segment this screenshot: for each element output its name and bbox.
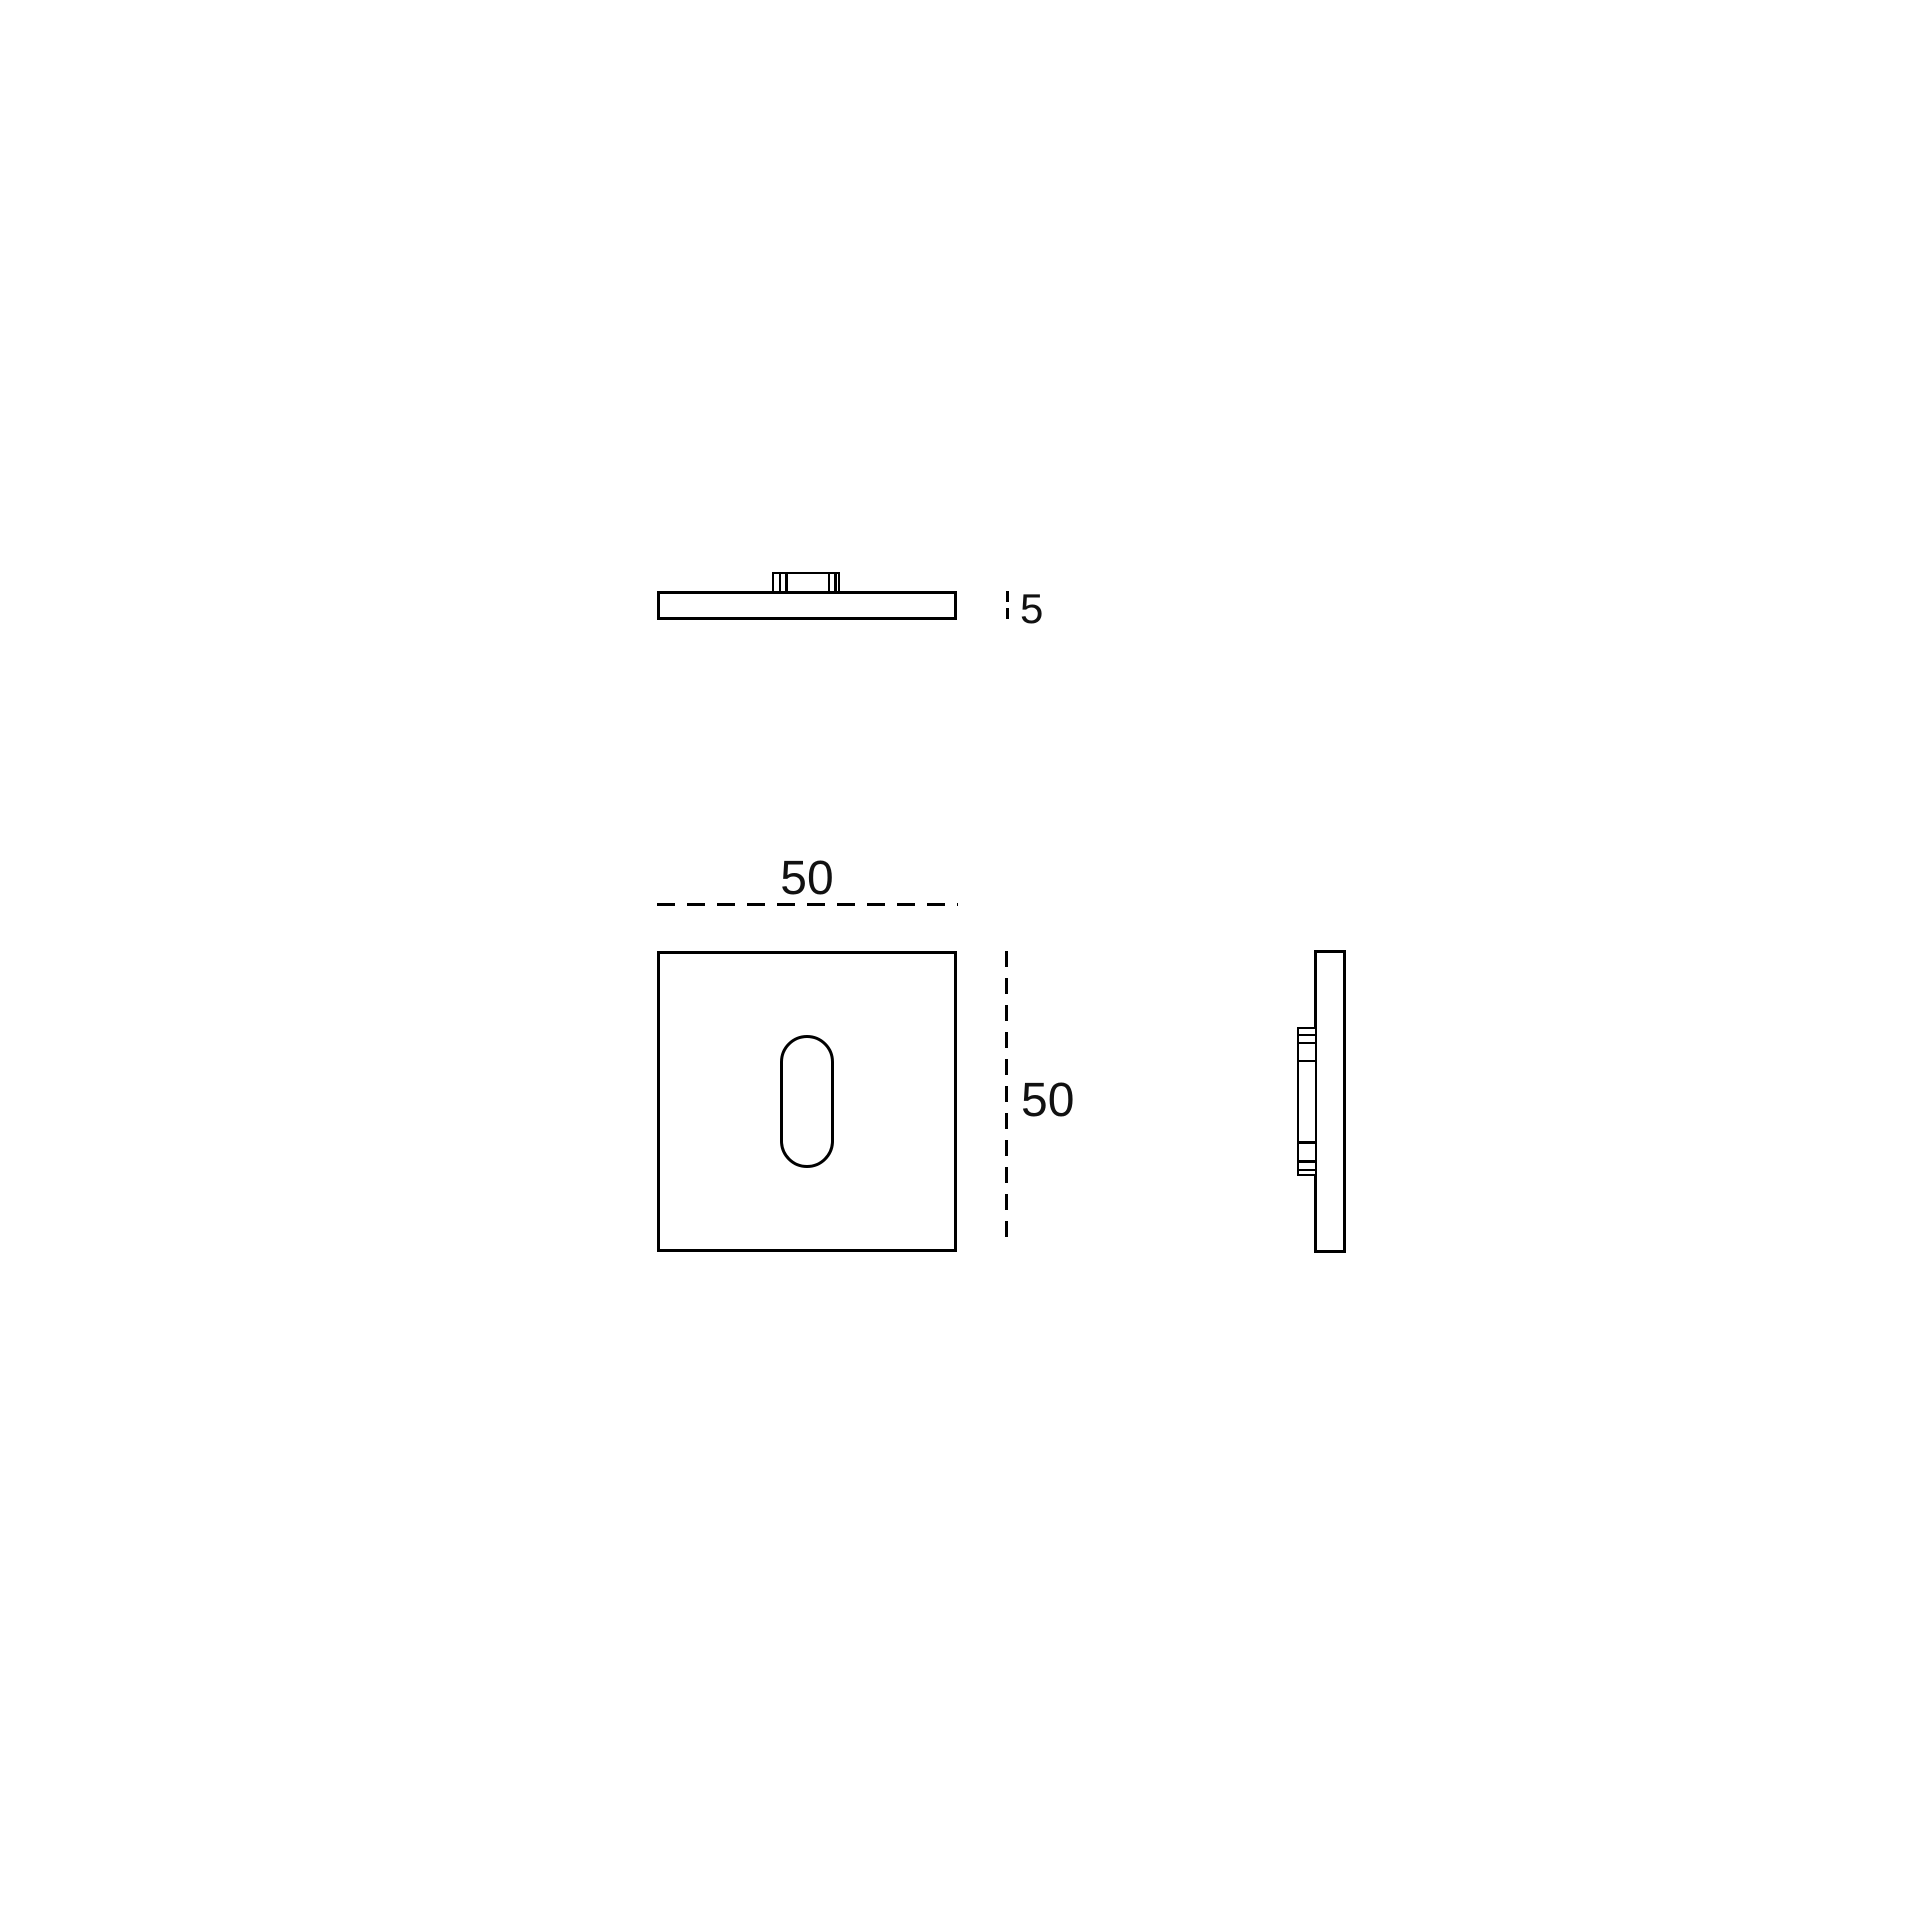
- clip-rib-line: [828, 574, 831, 591]
- clip-rib-line: [1297, 1042, 1315, 1045]
- width-dimension-label: 50: [757, 855, 857, 903]
- clip-rib-line: [779, 574, 782, 591]
- height-dimension-line: [1005, 951, 1008, 1248]
- side-view-plate: [1314, 950, 1346, 1253]
- clip-rib-line: [1297, 1034, 1315, 1037]
- width-dimension-line: [657, 903, 958, 906]
- keyhole-slot: [780, 1035, 834, 1168]
- thickness-dimension-label: 5: [1020, 588, 1043, 630]
- clip-rib-line: [1297, 1141, 1315, 1144]
- clip-rib-line: [785, 574, 788, 591]
- top-view-plate: [657, 591, 957, 620]
- technical-drawing-canvas: 5 50 50: [0, 0, 1920, 1920]
- thickness-dimension-line: [1006, 591, 1009, 620]
- clip-rib-line: [1297, 1060, 1315, 1063]
- height-dimension-label: 50: [1021, 1077, 1074, 1125]
- side-view-spring-clip: [1297, 1027, 1315, 1176]
- clip-rib-line: [1297, 1160, 1315, 1163]
- clip-rib-line: [834, 574, 837, 591]
- clip-rib-line: [1297, 1169, 1315, 1172]
